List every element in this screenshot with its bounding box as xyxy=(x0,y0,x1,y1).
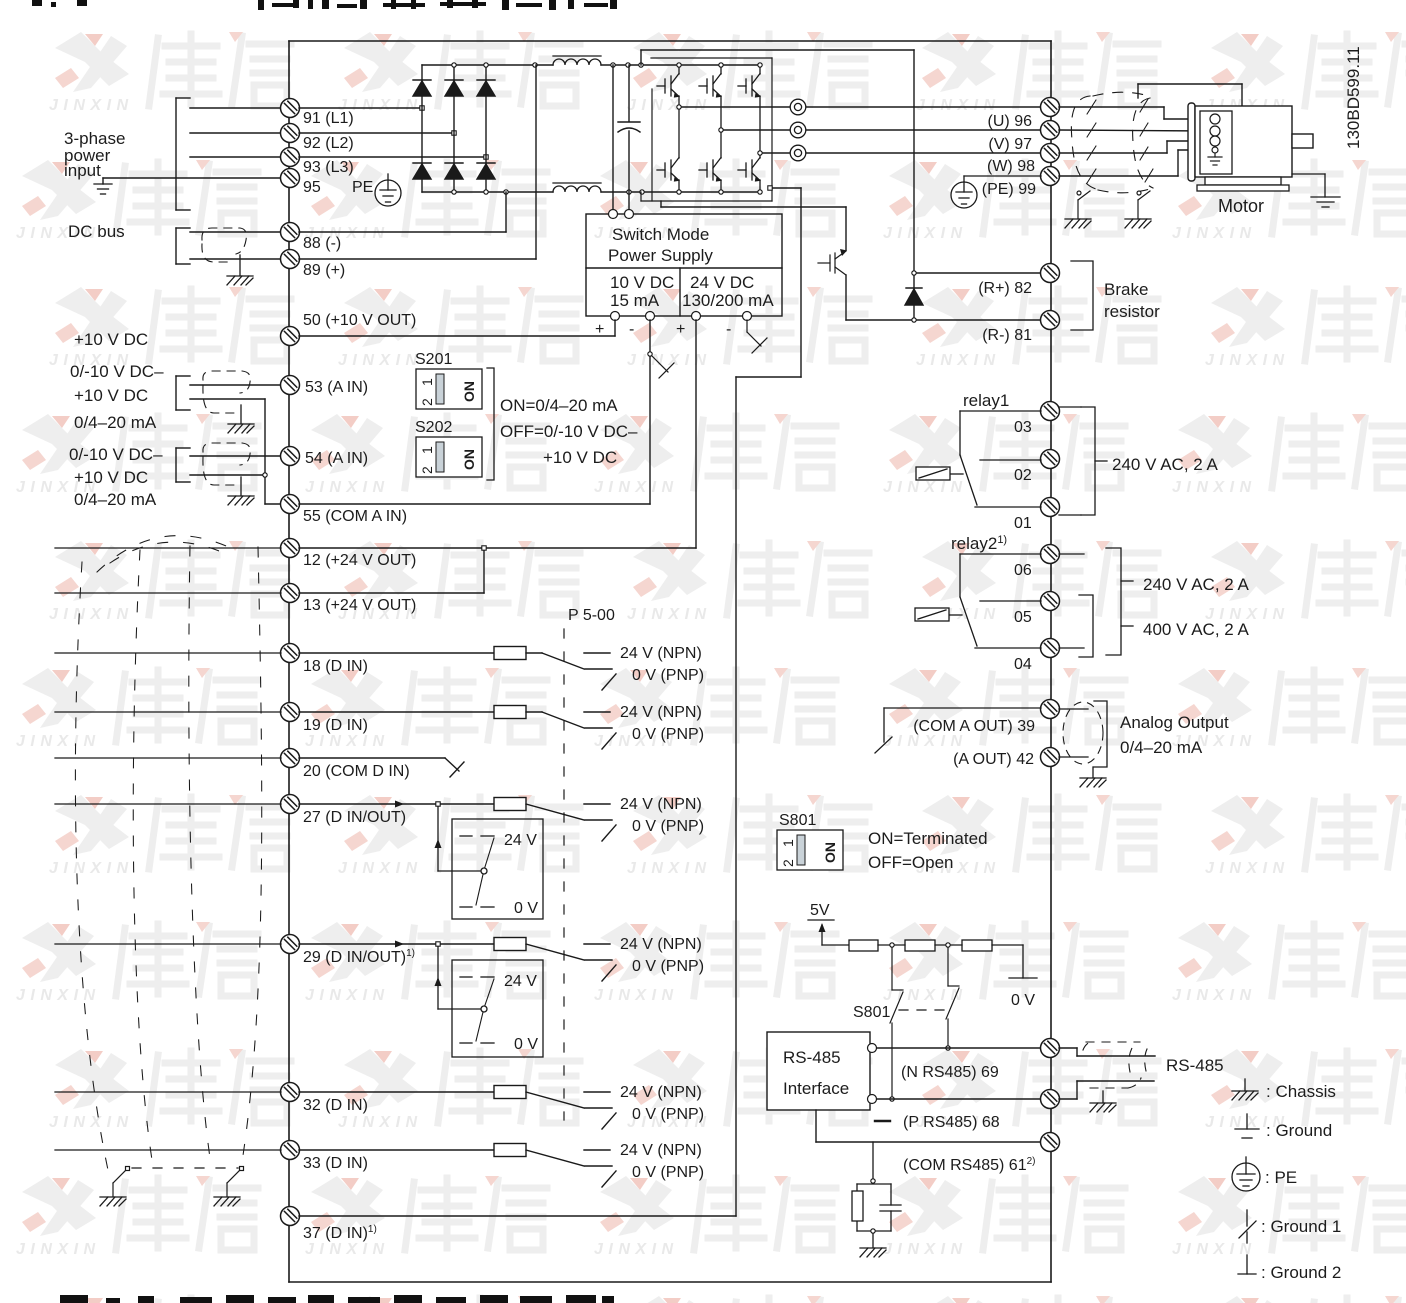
svg-text:ON=0/4–20 mA: ON=0/4–20 mA xyxy=(500,396,618,415)
svg-text:24 V (NPN): 24 V (NPN) xyxy=(620,1084,702,1101)
svg-text:24 V: 24 V xyxy=(504,832,537,849)
svg-text:01: 01 xyxy=(1014,515,1032,532)
svg-text:400 V AC, 2 A: 400 V AC, 2 A xyxy=(1143,620,1250,639)
svg-text:Interface: Interface xyxy=(783,1079,849,1098)
svg-text:(R-) 81: (R-) 81 xyxy=(982,327,1032,344)
svg-text:50 (+10 V OUT): 50 (+10 V OUT) xyxy=(303,312,416,329)
svg-text:+10 V DC: +10 V DC xyxy=(543,448,617,467)
svg-text:Motor: Motor xyxy=(1218,196,1264,216)
svg-text:0/4–20 mA: 0/4–20 mA xyxy=(74,490,157,509)
svg-text:(PE) 99: (PE) 99 xyxy=(982,181,1036,198)
svg-text:: Ground 2: : Ground 2 xyxy=(1261,1263,1341,1282)
svg-text:54 (A IN): 54 (A IN) xyxy=(305,450,368,467)
svg-text:05: 05 xyxy=(1014,609,1032,626)
svg-text:0/4–20 mA: 0/4–20 mA xyxy=(74,413,157,432)
svg-text:Brake: Brake xyxy=(1104,280,1148,299)
svg-text:(COM RS485) 612): (COM RS485) 612) xyxy=(903,1156,1036,1174)
svg-text:(W) 98: (W) 98 xyxy=(987,158,1035,175)
svg-text:S201: S201 xyxy=(415,351,452,368)
svg-text:0 V (PNP): 0 V (PNP) xyxy=(632,818,704,835)
svg-text:24 V (NPN): 24 V (NPN) xyxy=(620,645,702,662)
svg-text:(U) 96: (U) 96 xyxy=(988,113,1033,130)
svg-text:0/4–20 mA: 0/4–20 mA xyxy=(1120,738,1203,757)
svg-text:(P RS485) 68: (P RS485) 68 xyxy=(903,1114,1000,1131)
svg-text:0 V (PNP): 0 V (PNP) xyxy=(632,667,704,684)
svg-text:88 (-): 88 (-) xyxy=(303,235,341,252)
svg-text:04: 04 xyxy=(1014,656,1032,673)
svg-text:24 V (NPN): 24 V (NPN) xyxy=(620,796,702,813)
svg-text:(V) 97: (V) 97 xyxy=(988,136,1032,153)
svg-text:P 5-00: P 5-00 xyxy=(568,607,615,624)
svg-text:(COM A OUT) 39: (COM A OUT) 39 xyxy=(913,718,1035,735)
svg-text:0 V (PNP): 0 V (PNP) xyxy=(632,1164,704,1181)
svg-text:93 (L3): 93 (L3) xyxy=(303,159,354,176)
svg-text:12 (+24 V OUT): 12 (+24 V OUT) xyxy=(303,552,416,569)
svg-text:input: input xyxy=(64,161,101,180)
svg-text:+10 V DC: +10 V DC xyxy=(74,386,148,405)
svg-text:02: 02 xyxy=(1014,467,1032,484)
svg-text:24 V DC: 24 V DC xyxy=(690,273,754,292)
svg-text:0 V (PNP): 0 V (PNP) xyxy=(632,726,704,743)
svg-text:53 (A IN): 53 (A IN) xyxy=(305,379,368,396)
svg-text:06: 06 xyxy=(1014,562,1032,579)
svg-text:: Ground: : Ground xyxy=(1266,1121,1332,1140)
svg-text:Switch Mode: Switch Mode xyxy=(612,225,709,244)
svg-text:+: + xyxy=(676,321,685,338)
svg-text:92 (L2): 92 (L2) xyxy=(303,135,354,152)
svg-text:55 (COM A IN): 55 (COM A IN) xyxy=(303,508,407,525)
svg-text:0 V (PNP): 0 V (PNP) xyxy=(632,958,704,975)
svg-text:32 (D IN): 32 (D IN) xyxy=(303,1097,368,1114)
svg-text:(R+) 82: (R+) 82 xyxy=(978,280,1032,297)
svg-text:(N RS485) 69: (N RS485) 69 xyxy=(901,1064,999,1081)
svg-text:5V: 5V xyxy=(810,902,830,919)
svg-text:: Ground 1: : Ground 1 xyxy=(1261,1217,1341,1236)
svg-text:240 V AC, 2 A: 240 V AC, 2 A xyxy=(1112,455,1219,474)
svg-text:+10 V DC: +10 V DC xyxy=(74,468,148,487)
svg-text:OFF=Open: OFF=Open xyxy=(868,853,954,872)
svg-text:24 V (NPN): 24 V (NPN) xyxy=(620,936,702,953)
svg-text:20 (COM D IN): 20 (COM D IN) xyxy=(303,763,410,780)
svg-text:13 (+24 V OUT): 13 (+24 V OUT) xyxy=(303,597,416,614)
svg-text:: Chassis: : Chassis xyxy=(1266,1082,1336,1101)
svg-text:resistor: resistor xyxy=(1104,302,1160,321)
svg-text:03: 03 xyxy=(1014,419,1032,436)
svg-text:DC bus: DC bus xyxy=(68,222,125,241)
svg-text:0 V: 0 V xyxy=(514,1036,538,1053)
svg-text:0 V: 0 V xyxy=(1011,992,1035,1009)
svg-text:-: - xyxy=(629,321,634,338)
svg-text:PE: PE xyxy=(352,179,373,196)
svg-text:0 V: 0 V xyxy=(514,900,538,917)
svg-text:15 mA: 15 mA xyxy=(610,291,660,310)
svg-text:0/-10 V DC–: 0/-10 V DC– xyxy=(70,362,164,381)
svg-text:: PE: : PE xyxy=(1265,1168,1297,1187)
svg-text:ON=Terminated: ON=Terminated xyxy=(868,829,988,848)
svg-text:240 V AC, 2 A: 240 V AC, 2 A xyxy=(1143,575,1250,594)
svg-text:33 (D IN): 33 (D IN) xyxy=(303,1155,368,1172)
svg-text:24 V (NPN): 24 V (NPN) xyxy=(620,704,702,721)
svg-text:S801: S801 xyxy=(853,1004,890,1021)
svg-text:Analog Output: Analog Output xyxy=(1120,713,1229,732)
svg-text:10 V DC: 10 V DC xyxy=(610,273,674,292)
svg-text:27 (D IN/OUT): 27 (D IN/OUT) xyxy=(303,809,406,826)
svg-text:(A OUT) 42: (A OUT) 42 xyxy=(953,751,1034,768)
svg-text:0/-10 V DC–: 0/-10 V DC– xyxy=(69,445,163,464)
svg-text:19 (D IN): 19 (D IN) xyxy=(303,717,368,734)
svg-text:S801: S801 xyxy=(779,812,816,829)
svg-text:relay21): relay21) xyxy=(951,534,1007,553)
svg-text:relay1: relay1 xyxy=(963,391,1009,410)
svg-text:S202: S202 xyxy=(415,419,452,436)
svg-text:130BD599.11: 130BD599.11 xyxy=(1344,46,1363,149)
svg-text:+10 V DC: +10 V DC xyxy=(74,330,148,349)
svg-text:24 V: 24 V xyxy=(504,973,537,990)
svg-text:OFF=0/-10 V DC–: OFF=0/-10 V DC– xyxy=(500,422,638,441)
svg-text:91 (L1): 91 (L1) xyxy=(303,110,354,127)
svg-text:95: 95 xyxy=(303,179,321,196)
svg-text:24 V (NPN): 24 V (NPN) xyxy=(620,1142,702,1159)
svg-text:-: - xyxy=(726,321,731,338)
svg-text:18 (D IN): 18 (D IN) xyxy=(303,658,368,675)
svg-text:Power Supply: Power Supply xyxy=(608,246,713,265)
svg-text:89 (+): 89 (+) xyxy=(303,262,345,279)
svg-text:37 (D IN)1): 37 (D IN)1) xyxy=(303,1224,377,1242)
svg-text:RS-485: RS-485 xyxy=(1166,1056,1224,1075)
svg-text:RS-485: RS-485 xyxy=(783,1048,841,1067)
svg-text:0 V (PNP): 0 V (PNP) xyxy=(632,1106,704,1123)
svg-text:29 (D IN/OUT)1): 29 (D IN/OUT)1) xyxy=(303,948,415,966)
svg-text:130/200 mA: 130/200 mA xyxy=(682,291,774,310)
